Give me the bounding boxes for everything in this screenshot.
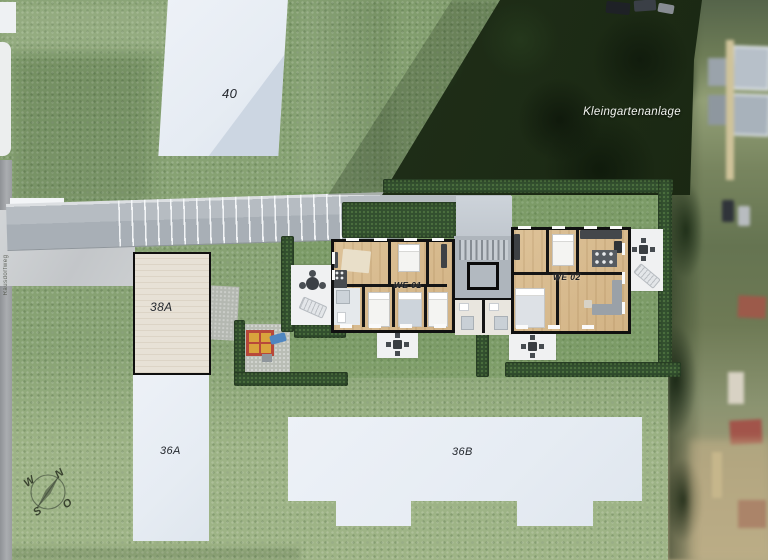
compass-east-label: O xyxy=(61,496,75,511)
interior-wall xyxy=(388,242,391,284)
red-roof-shed xyxy=(737,295,766,318)
wardrobe xyxy=(441,244,447,268)
car xyxy=(605,1,630,15)
bed xyxy=(428,292,448,327)
window xyxy=(582,325,594,329)
patio-table xyxy=(639,245,648,254)
compass-south-label: S xyxy=(31,504,44,518)
interior-wall xyxy=(392,287,395,327)
hedge xyxy=(234,372,348,386)
window xyxy=(610,226,622,230)
compass-north-label: N xyxy=(53,466,67,481)
hedge xyxy=(476,333,489,377)
car xyxy=(634,0,657,12)
window xyxy=(374,238,387,242)
hedge xyxy=(234,320,245,380)
window xyxy=(584,226,597,230)
window xyxy=(622,272,626,284)
shower xyxy=(494,316,508,330)
compass-rose: N O S W xyxy=(12,456,84,528)
window xyxy=(404,238,417,242)
dining-table xyxy=(592,250,617,267)
window xyxy=(332,270,336,280)
toilet xyxy=(489,303,499,311)
interior-wall xyxy=(546,230,549,274)
window xyxy=(548,325,560,329)
pillow xyxy=(399,293,421,300)
interior-wall xyxy=(482,300,485,333)
patio-table xyxy=(528,342,537,351)
greenhouse xyxy=(729,93,768,136)
building-38a-label: 38A xyxy=(150,300,173,314)
pillow xyxy=(399,245,419,252)
window xyxy=(432,238,444,242)
unit-we02-label: WE 02 xyxy=(553,272,581,282)
patio-table xyxy=(393,340,402,349)
pillow xyxy=(369,293,389,300)
playground-bench xyxy=(262,354,272,362)
patio-west xyxy=(291,265,334,325)
interior-wall xyxy=(334,284,447,287)
interior-wall xyxy=(362,287,365,327)
compass-west-label: W xyxy=(22,473,39,490)
building-40-label: 40 xyxy=(222,86,237,101)
staircase xyxy=(459,240,508,260)
bed xyxy=(552,234,574,266)
window xyxy=(518,226,531,230)
interior-wall xyxy=(576,230,579,274)
window xyxy=(516,325,528,329)
car xyxy=(657,3,674,15)
garden-path xyxy=(726,40,734,180)
bed xyxy=(398,244,420,272)
compass-needle-line xyxy=(37,476,59,508)
ramp-posts xyxy=(118,193,345,246)
bed xyxy=(368,292,390,327)
sofa xyxy=(612,280,622,312)
light-structure xyxy=(728,372,744,404)
pillow xyxy=(553,235,573,242)
toilet xyxy=(337,312,346,323)
window xyxy=(332,252,336,264)
building-36b-label: 36B xyxy=(452,446,473,458)
wardrobe xyxy=(514,234,520,260)
interior-wall xyxy=(426,242,429,284)
window xyxy=(369,324,381,328)
elevator-shaft xyxy=(467,262,499,290)
car xyxy=(738,206,750,226)
hedge xyxy=(505,362,681,377)
car xyxy=(722,200,734,222)
window xyxy=(622,243,626,255)
bed xyxy=(398,292,422,327)
pillow xyxy=(516,289,544,296)
kleingarten-label: Kleingartenanlage xyxy=(552,106,712,118)
street-name-label: Rausdorfweg xyxy=(3,240,9,310)
dirt-area xyxy=(690,440,768,560)
window xyxy=(346,238,359,242)
greenhouse xyxy=(731,45,768,90)
garden-shed xyxy=(708,58,726,86)
building-36a-label: 36A xyxy=(160,445,181,457)
pillow xyxy=(429,293,447,300)
corner-structure xyxy=(0,2,16,33)
window xyxy=(622,302,626,314)
window xyxy=(434,324,446,328)
unit-we01-label: WE 01 xyxy=(394,280,422,290)
shower xyxy=(461,316,474,330)
hedge xyxy=(383,179,673,193)
interior-wall xyxy=(424,287,427,327)
coffee-table xyxy=(584,300,592,308)
kitchen-counter xyxy=(580,230,622,239)
playground-sandbox xyxy=(246,330,274,356)
interior-wall xyxy=(556,275,559,328)
bed xyxy=(515,288,545,328)
window xyxy=(552,226,565,230)
curved-footpath xyxy=(0,42,11,156)
building-40 xyxy=(158,0,288,156)
site-plan: 40 38A 36A 36B WE 01 WE 02 Kleingartenan… xyxy=(0,0,768,560)
window xyxy=(340,324,352,328)
shower xyxy=(336,290,350,304)
hedge xyxy=(342,202,458,238)
patio-table xyxy=(306,277,319,290)
window xyxy=(400,324,412,328)
toilet xyxy=(459,303,469,311)
